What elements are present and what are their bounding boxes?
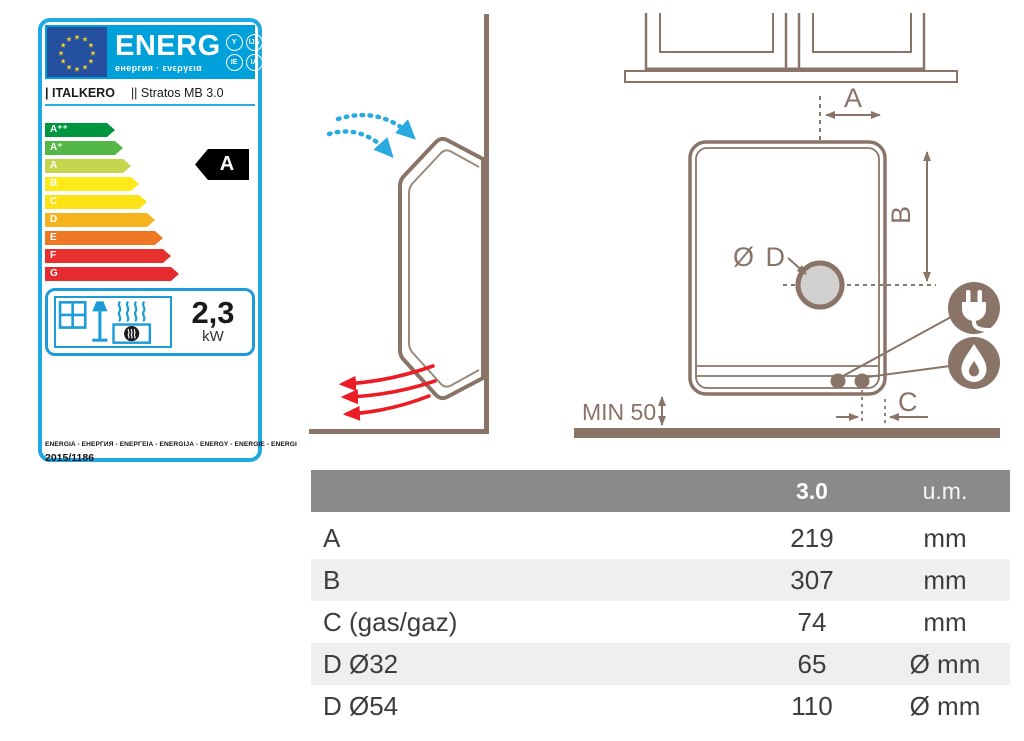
rating-letter: A: [220, 153, 234, 176]
flame-icon: [948, 337, 1000, 389]
row-unit: Ø mm: [880, 685, 1010, 727]
heater-side-outline: [400, 139, 483, 398]
energy-class-bar: G: [45, 267, 179, 281]
energy-class-letter: D: [50, 214, 57, 225]
model-name: || Stratos MB 3.0: [131, 86, 224, 100]
svg-text:★: ★: [66, 36, 72, 44]
svg-text:★: ★: [88, 58, 94, 66]
language-badge: IA: [246, 54, 263, 71]
table-row: A 219 mm: [311, 517, 1010, 559]
power-unit: kW: [176, 329, 250, 344]
window-sill: [625, 71, 957, 82]
language-badge: IJA: [246, 34, 263, 51]
pictogram-box: 2,3 kW: [45, 288, 255, 356]
energy-class-bar: C: [45, 195, 147, 209]
dimensions-table: 3.0 u.m. A 219 mm B 307 mm C (gas/gaz) 7…: [311, 470, 1010, 727]
energy-class-scale: A⁺⁺ A⁺ A B C D E F G: [45, 123, 179, 285]
lamp-icon: [92, 301, 107, 341]
heater-pictogram-icon: [114, 302, 150, 342]
energy-class-letter: F: [50, 250, 56, 261]
row-label: A: [323, 517, 340, 559]
energy-label-header: ★★★ ★★★ ★★★ ★★★ ENERG енергия · ενεργεια…: [45, 25, 255, 79]
energy-class-bar: B: [45, 177, 139, 191]
row-label: D Ø54: [323, 685, 398, 727]
energy-class-bar: A: [45, 159, 131, 173]
min-clearance-label: MIN 50: [582, 399, 656, 425]
window-drawing: [625, 13, 957, 82]
window-pictogram-icon: [60, 302, 85, 327]
row-label: D Ø32: [323, 643, 398, 685]
svg-text:★: ★: [88, 42, 94, 50]
brand-model-row: | ITALKERO || Stratos MB 3.0: [45, 86, 255, 106]
energy-class-bar: E: [45, 231, 163, 245]
installation-diagram: A B Ø D: [290, 0, 1024, 460]
hole-diameter-label: Ø D: [733, 242, 787, 272]
svg-text:★: ★: [60, 58, 66, 66]
eu-flag-icon: ★★★ ★★★ ★★★ ★★★: [47, 27, 107, 77]
language-badge: IE: [226, 54, 243, 71]
front-view: A B Ø D: [574, 13, 1000, 438]
row-unit: mm: [880, 517, 1010, 559]
svg-text:★: ★: [58, 50, 64, 58]
row-label: C (gas/gaz): [323, 601, 457, 643]
side-view: [309, 14, 489, 434]
table-row: B 307 mm: [311, 559, 1010, 601]
table-row: D Ø54 110 Ø mm: [311, 685, 1010, 727]
table-header-unit: u.m.: [880, 470, 1010, 512]
datasheet-page: ★★★ ★★★ ★★★ ★★★ ENERG енергия · ενεργεια…: [0, 0, 1024, 741]
energy-class-bar: A⁺⁺: [45, 123, 115, 137]
energy-class-letter: G: [50, 268, 58, 279]
table-row: C (gas/gaz) 74 mm: [311, 601, 1010, 643]
energy-class-letter: E: [50, 232, 57, 243]
table-row: D Ø32 65 Ø mm: [311, 643, 1010, 685]
energy-languages-line: ENERGIA - ЕНЕРГИЯ - ΕΝΕΡΓΕΙΑ - ENERGIJA …: [45, 441, 257, 448]
heater-front-outline: [690, 142, 885, 394]
dim-b-label: B: [886, 206, 916, 224]
plug-icon: [948, 282, 1000, 334]
regulation-number: 2015/1186: [45, 452, 94, 464]
energy-class-letter: C: [50, 196, 57, 207]
svg-text:★: ★: [66, 63, 72, 71]
row-unit: mm: [880, 559, 1010, 601]
flue-hole-circle: [798, 263, 842, 307]
dim-c-label: C: [898, 387, 918, 417]
energy-class-bar: A⁺: [45, 141, 123, 155]
gas-connection-dot: [855, 374, 870, 389]
energy-class-bar: F: [45, 249, 171, 263]
row-unit: Ø mm: [880, 643, 1010, 685]
svg-text:★: ★: [74, 34, 80, 42]
energy-label-title-block: ENERG енергия · ενεργεια: [115, 32, 221, 73]
energy-language-badges: Y IJA IE IA: [226, 34, 263, 71]
side-floor-line: [309, 429, 486, 434]
language-badge: Y: [226, 34, 243, 51]
energy-subtitle: енергия · ενεργεια: [115, 64, 221, 73]
pictogram-icons: [54, 296, 172, 348]
row-label: B: [323, 559, 340, 601]
power-value: 2,3: [176, 297, 250, 328]
energy-class-letter: A⁺: [50, 142, 63, 153]
energy-class-letter: A⁺⁺: [50, 124, 68, 135]
svg-text:★: ★: [74, 66, 80, 74]
energy-class-bar: D: [45, 213, 155, 227]
svg-text:★: ★: [82, 63, 88, 71]
dim-a-label: A: [844, 83, 862, 113]
air-intake-arrows-icon: [329, 115, 412, 154]
row-unit: mm: [880, 601, 1010, 643]
energy-title: ENERG: [115, 32, 221, 61]
front-floor-bar: [574, 428, 1000, 438]
rating-tag: A: [195, 149, 249, 180]
energy-class-letter: A: [50, 160, 57, 171]
energy-label: ★★★ ★★★ ★★★ ★★★ ENERG енергия · ενεργεια…: [38, 18, 262, 462]
svg-text:★: ★: [90, 50, 96, 58]
table-header-row: 3.0 u.m.: [311, 470, 1010, 512]
power-rating: 2,3 kW: [176, 297, 250, 344]
brand-name: | ITALKERO: [45, 86, 115, 100]
energy-class-letter: B: [50, 178, 57, 189]
